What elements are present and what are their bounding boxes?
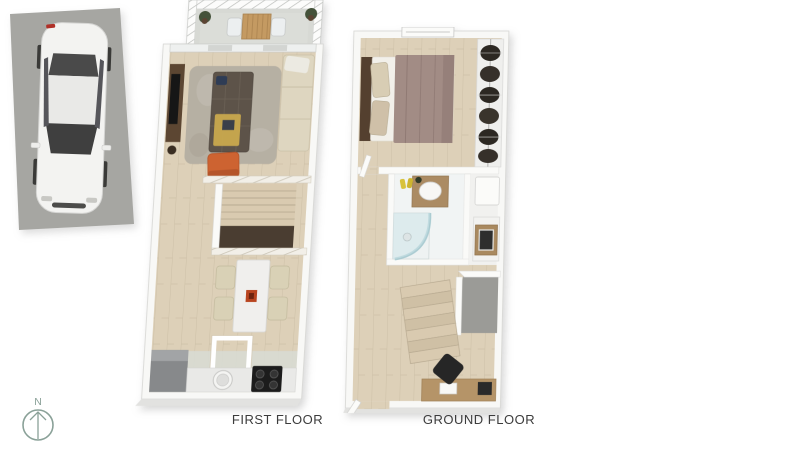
laptop: [440, 383, 457, 394]
headlight-right: [86, 198, 97, 203]
vanity-sink: [412, 176, 449, 207]
bathroom: [387, 174, 471, 265]
gray-nook-floor: [459, 273, 498, 333]
toilet: [475, 177, 500, 205]
wall-bottom-face: [135, 399, 301, 406]
kitchen-sink: [213, 371, 233, 390]
ground-floor-plan: [343, 27, 512, 413]
terrace-railing-top: [188, 0, 323, 9]
stove: [251, 366, 283, 392]
headlight-left: [41, 196, 52, 201]
side-mirror-right: [102, 145, 111, 150]
printer: [478, 382, 492, 395]
parking-drawing: [0, 0, 145, 240]
utility-area: [469, 174, 501, 265]
compass-drawing: N: [16, 392, 60, 450]
blanket-fold: [441, 55, 454, 143]
shower-drain: [403, 233, 411, 241]
floorplan-canvas: N FIRST FLOOR GROUND FLOOR: [0, 0, 805, 453]
beige-sofa: [278, 55, 315, 151]
dining-table: [233, 260, 270, 332]
entrance-opening: [357, 401, 389, 409]
ground-floor-drawing: [343, 27, 512, 413]
pillow: [370, 62, 390, 98]
rear-window: [48, 53, 99, 77]
nook-wall: [458, 271, 500, 277]
shower: [393, 213, 430, 259]
side-mirror-left: [31, 143, 40, 148]
stair-railing-bottom: [211, 248, 306, 255]
first-floor-label: FIRST FLOOR: [210, 412, 345, 427]
dark-sofa: [209, 72, 254, 152]
pillow: [369, 100, 390, 135]
washing-machine: [473, 217, 500, 261]
bedroom-window: [402, 27, 454, 37]
wardrobe: [475, 39, 504, 167]
ground-floor-label: GROUND FLOOR: [408, 412, 550, 427]
car-roof: [47, 75, 99, 125]
bedroom-dividing-wall: [358, 167, 499, 174]
windshield: [45, 123, 98, 155]
tray: [222, 120, 235, 130]
compass-north-letter: N: [34, 396, 42, 408]
terrace-chair-right: [271, 18, 286, 36]
double-bed: [359, 55, 454, 143]
terrace: [186, 0, 323, 49]
compass: N: [16, 392, 60, 450]
stair-railing-top: [203, 176, 311, 183]
terrace-table: [242, 14, 272, 39]
car-top-view: [29, 22, 116, 215]
navy-pillow: [216, 76, 228, 85]
orange-armchair: [208, 152, 239, 179]
terrace-chair-left: [227, 18, 242, 36]
stairs-up: [400, 280, 460, 364]
sliding-glass-door: [170, 44, 316, 52]
parking-space: [0, 0, 145, 240]
